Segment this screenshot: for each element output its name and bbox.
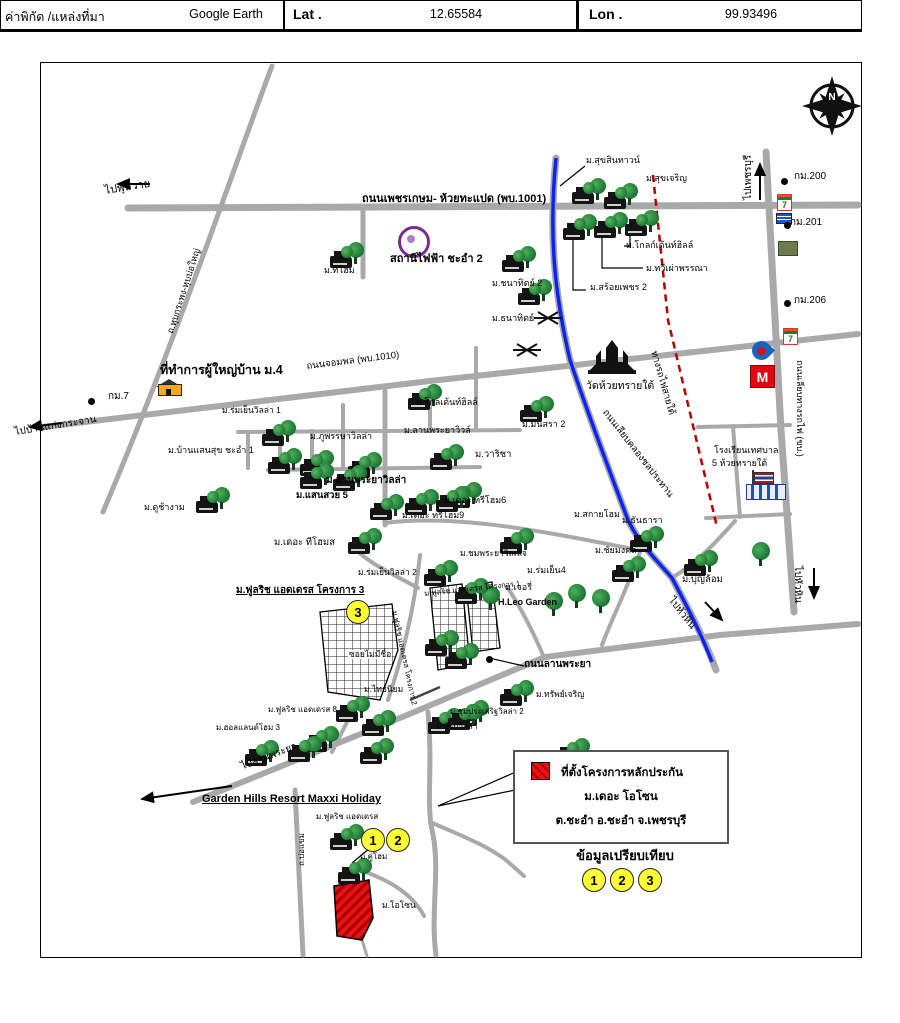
map-label: ม.สุขสินทาวน์: [586, 156, 640, 165]
house-icon: [594, 226, 616, 238]
map-label: ม.โกลเด้นท์ฮิลล์: [416, 398, 478, 407]
map-label: ม.ลานพระยาวิวล์: [404, 426, 471, 435]
village-marker: [612, 556, 648, 582]
km-marker-206: กม.206: [794, 296, 826, 307]
lon-label: Lon .: [589, 6, 622, 22]
road-label-to-huahin-road: ไปหัวหิน: [792, 566, 803, 603]
seven-eleven-icon: 7: [777, 194, 792, 211]
map-label: ม.ชมพระยาวิลเลจ: [460, 549, 527, 558]
thai-flag-icon: [754, 472, 774, 484]
map-label: ม.บ้านแสนสุข ชะอำ 1: [168, 446, 254, 455]
map-label: ม.วาริชา: [475, 450, 511, 460]
house-icon: [336, 710, 358, 722]
house-icon: [604, 197, 626, 209]
village-marker: [604, 183, 640, 209]
tree-icon: [280, 420, 296, 436]
road-label-to-phetchaburi: ไปเพชรบุรี: [744, 155, 755, 200]
tree-icon: [538, 396, 554, 412]
map-label: ม.สุขเจริญ: [646, 174, 687, 183]
tree-icon: [378, 738, 394, 754]
header-divider: [576, 1, 579, 29]
map-label: ม.เดอะ ทรีโฮม6: [444, 496, 506, 505]
tree-icon: [518, 680, 534, 696]
tree-icon: [306, 736, 322, 752]
map-label: H.Leo Garden: [498, 598, 557, 607]
road-label-lanphraya: ถนนลานพระยา: [524, 660, 591, 671]
village-marker: [502, 246, 538, 272]
comparison-number-circle: 1: [361, 828, 385, 852]
map-label: ม.ฟูลริช แอดเดรส: [316, 813, 378, 821]
building-icon: [778, 241, 798, 256]
school-icon: [746, 476, 784, 500]
map-label: ม.ชัยมงคล: [595, 546, 637, 555]
village-marker: [500, 680, 536, 706]
village-marker: [572, 178, 608, 204]
house-icon: [430, 458, 452, 470]
village-marker: [430, 444, 466, 470]
km-point-dot: [486, 656, 493, 663]
header-divider: [283, 1, 285, 29]
house-icon: [625, 224, 647, 236]
tree-icon: [592, 589, 610, 607]
tree-icon: [630, 556, 646, 572]
village-marker: [625, 210, 661, 236]
map-label: ม.ฮอลแลนด์โฮม 3: [216, 724, 280, 732]
km-point-dot: [88, 398, 95, 405]
house-icon: [262, 434, 284, 446]
house-icon: [445, 657, 467, 669]
village-marker: [360, 738, 396, 764]
village-marker: [268, 448, 304, 474]
house-icon: [362, 724, 384, 736]
map-label: ม.ทีโฮม: [324, 266, 355, 275]
house-icon: [502, 260, 524, 272]
subject-site-legend-icon: [531, 762, 550, 780]
map-label: ม.ฟูลริช แอดเดรส 8: [268, 706, 337, 714]
comparison-number-circle: 2: [610, 868, 634, 892]
comparison-number-circle: 3: [346, 600, 370, 624]
km-point-dot: [781, 178, 788, 185]
coord-source-value: Google Earth: [171, 7, 281, 21]
unnamed-soi-label: ซอยไม่มีชื่อ: [348, 650, 392, 659]
tree-icon: [214, 487, 230, 503]
tree-icon: [648, 526, 664, 542]
map-label: ม.ธันธารา: [622, 516, 663, 525]
lon-value: 99.93496: [651, 7, 851, 21]
map-label: ม.ทวีเผ่าพรรณา: [646, 264, 708, 273]
tree-icon: [622, 183, 638, 199]
tree-icon: [448, 444, 464, 460]
tree-icon: [520, 246, 536, 262]
house-icon: [300, 477, 322, 489]
map-label: ม.เดอะ ทรีโฮม9: [402, 511, 464, 520]
legend-title: ที่ตั้งโครงการหลักประกัน: [561, 764, 683, 782]
map-label: ม.สร้อยเพชร 2: [590, 283, 647, 292]
map-label: ม.ลานพระยาวิลล่า: [326, 476, 406, 487]
map-label: ม.โกลก์เด้นท์ฮิลล์: [626, 241, 693, 250]
comparison-number-circle: 1: [582, 868, 606, 892]
comparison-title: ข้อมูลเปรียบเทียบ: [545, 845, 705, 866]
house-icon: [338, 872, 360, 884]
map-label: ม.บุญล้อม: [682, 575, 723, 585]
tree-icon: [348, 242, 364, 258]
temple-label: วัดห้วยทรายใต้: [586, 381, 654, 392]
lat-label: Lat .: [293, 6, 322, 22]
coord-source-label: ค่าพิกัด /แหล่งที่มา: [5, 7, 105, 27]
village-marker: [262, 420, 298, 446]
map-label: ม.ภูพรรษาวิลล่า: [310, 432, 372, 441]
village-marker: [338, 858, 374, 884]
house-icon: [563, 228, 585, 240]
km-marker-200: กม.200: [794, 172, 826, 183]
map-label: ม.ชุมประเสริฐวิลล่า 2: [450, 708, 524, 716]
m-mart-icon: M: [750, 365, 775, 388]
road-label-bokhaem: ถ.บ่อแขม: [298, 833, 306, 866]
tree-icon: [752, 542, 770, 560]
house-icon: [424, 574, 446, 586]
road-label-phetkasem: ถนนเพชรเกษม- ห้วยทะแปด (พบ.1001): [362, 194, 546, 206]
house-icon: [370, 508, 392, 520]
km-marker-7: กม.7: [108, 392, 129, 403]
house-icon: [268, 462, 290, 474]
tree-icon: [380, 710, 396, 726]
tree-icon: [388, 494, 404, 510]
location-map-page: { "header": { "coord_source_label": "ค่า…: [0, 0, 900, 1023]
map-label: ม.ชนาทิตย์ 2: [492, 279, 542, 288]
map-label: ม.ร่มเย็นวิลล่า 2: [358, 568, 417, 577]
tree-icon: [366, 528, 382, 544]
map-label: ม.มนัสรา 2: [522, 420, 565, 429]
comparison-number-circle: 3: [638, 868, 662, 892]
tree-icon: [643, 210, 659, 226]
map-label: ม.คู่โฮม: [360, 853, 387, 861]
house-icon: [196, 501, 218, 513]
tree-icon: [463, 643, 479, 659]
map-label: ม.ฟูลริช แอดเดรส โครงการ 3: [236, 586, 364, 597]
km-marker-201: กม.201: [790, 218, 822, 229]
map-label: ม.ดูช้างาม: [144, 503, 185, 512]
village-marker: [362, 710, 398, 736]
comparison-number-circle: 2: [386, 828, 410, 852]
village-marker: [196, 487, 232, 513]
tree-icon: [702, 550, 718, 566]
legend-box: ที่ตั้งโครงการหลักประกัน ม.เดอะ โอโซน ต.…: [513, 750, 729, 844]
house-icon: [612, 570, 634, 582]
village-marker: [370, 494, 406, 520]
power-station-label: สถานีไฟฟ้า ชะอำ 2: [390, 254, 483, 266]
lat-value: 12.65584: [356, 7, 556, 21]
legend-project-name: ม.เดอะ โอโซน: [515, 788, 727, 806]
garden-hills-label: Garden Hills Resort Maxxi Holiday: [202, 794, 381, 806]
tree-icon: [518, 528, 534, 544]
tree-icon: [442, 560, 458, 576]
map-label: ม.บ้านวิลล่า: [436, 723, 477, 731]
house-icon: [500, 694, 522, 706]
house-icon: [518, 293, 540, 305]
village-headman-office-icon: [158, 380, 180, 396]
house-icon: [330, 838, 352, 850]
map-label: ม.ร่มเย็น4: [527, 566, 566, 575]
subject-site-label: ม.โอโซน: [382, 901, 416, 910]
map-label: ม.ธนาทิตย์: [492, 314, 534, 323]
map-label: ม.แสนสวย 5: [296, 491, 348, 501]
house-icon: [360, 752, 382, 764]
seven-eleven-icon: 7: [783, 328, 798, 345]
village-marker: [684, 550, 720, 576]
map-label: ม.ทรัพย์เจริญ: [536, 690, 584, 699]
village-headman-office-label: ที่ทำการผู้ใหญ่บ้าน ม.4: [160, 364, 283, 377]
house-icon: [425, 644, 447, 656]
road-label-railway-side: ถนนเลียบทางรถไฟ (ขบ.): [795, 360, 804, 457]
km-point-dot: [784, 300, 791, 307]
school-label-line2: 5 ห้วยทรายใต้: [712, 459, 767, 468]
village-marker: [348, 528, 384, 554]
map-label: ม.เดอะ ทีโฮมส: [274, 538, 335, 548]
village-marker: [445, 643, 481, 669]
tree-icon: [323, 726, 339, 742]
house-icon: [572, 192, 594, 204]
map-label: ม.ไทยนิยม: [364, 685, 403, 694]
coordinate-header-table: ค่าพิกัด /แหล่งที่มา Google Earth Lat . …: [0, 0, 862, 32]
map-label: ม.สกายโฮม: [574, 510, 620, 519]
school-label-line1: โรงเรียนเทศบาล: [714, 446, 778, 455]
tree-icon: [568, 584, 586, 602]
legend-address: ต.ชะอำ อ.ชะอำ จ.เพชรบุรี: [515, 812, 727, 830]
map-label: ม.ร่มเย็นวิลล่า 1: [222, 406, 281, 415]
house-icon: [348, 542, 370, 554]
